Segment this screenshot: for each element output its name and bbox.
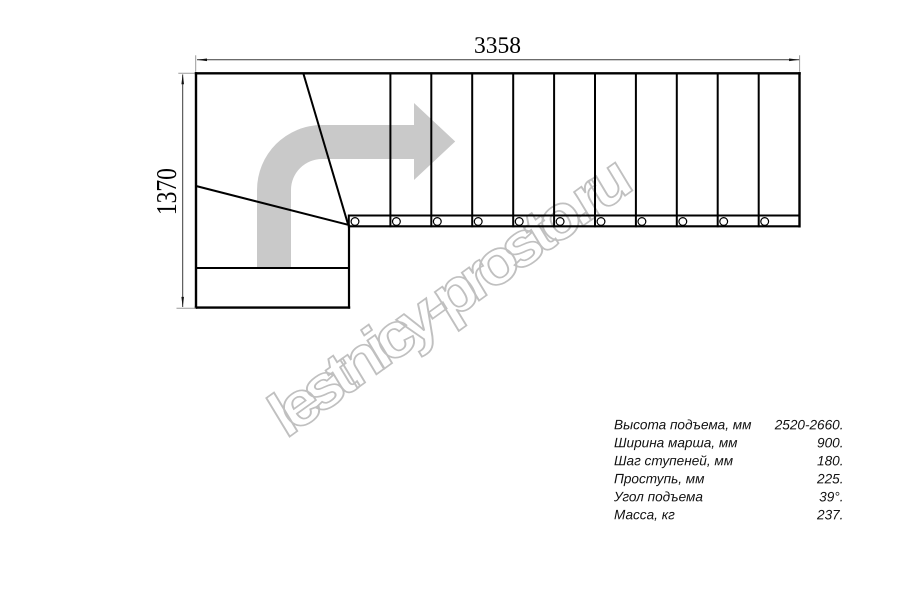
svg-text:Высота подъема, мм: Высота подъема, мм [614, 417, 752, 432]
svg-text:Масса, кг: Масса, кг [614, 507, 675, 522]
svg-text:900.: 900. [817, 435, 843, 450]
svg-text:237.: 237. [816, 507, 843, 522]
svg-text:225.: 225. [816, 471, 843, 486]
svg-text:Шаг ступеней, мм: Шаг ступеней, мм [614, 453, 734, 468]
svg-text:180.: 180. [817, 453, 843, 468]
svg-text:Угол подъема: Угол подъема [613, 489, 703, 504]
svg-text:Проступь, мм: Проступь, мм [614, 471, 705, 486]
svg-text:1370: 1370 [151, 168, 183, 215]
svg-text:lestnicy-prosto.ru: lestnicy-prosto.ru [250, 145, 647, 447]
svg-text:Ширина марша, мм: Ширина марша, мм [614, 435, 738, 450]
svg-text:3358: 3358 [474, 33, 521, 59]
svg-text:2520-2660.: 2520-2660. [774, 417, 844, 432]
svg-text:39°.: 39°. [819, 489, 843, 504]
